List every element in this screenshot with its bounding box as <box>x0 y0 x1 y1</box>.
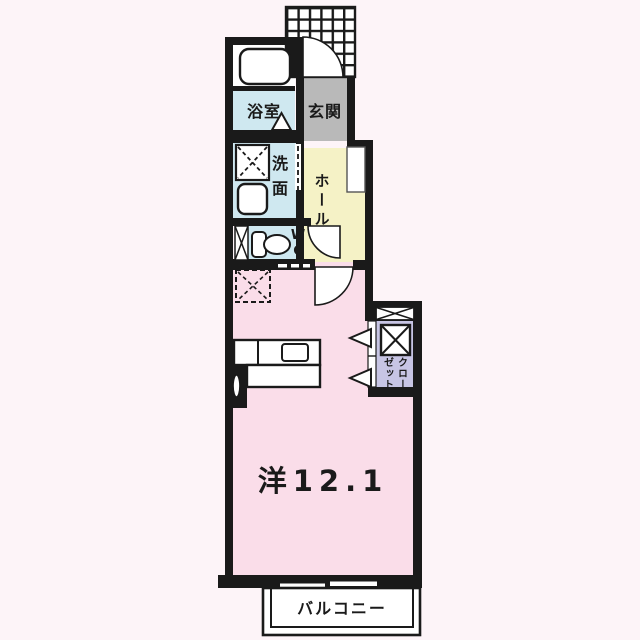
floorplan-canvas: 浴室 玄関 ホール 洗面 WC 洋12.1 クロー ゼット バルコニー <box>0 0 640 640</box>
wall-lens-window-icon <box>233 375 240 397</box>
closet-hanger-box-icon <box>381 325 410 355</box>
kitchen-sink-icon <box>282 344 308 361</box>
kitchen-counter-icon <box>234 340 320 387</box>
wall-wash-wc <box>225 218 311 226</box>
wall-bath-wash <box>225 130 303 143</box>
wall-right-upper <box>365 143 373 303</box>
washroom-sliding-door-icon <box>295 144 301 190</box>
balcony-label: バルコニー <box>271 596 413 618</box>
hall-label: ホール <box>311 150 333 252</box>
wall-gap-dashes <box>278 264 310 268</box>
shoe-cabinet-icon <box>347 147 365 192</box>
wall-window-slot-icon <box>235 226 248 260</box>
wall-right-lower <box>413 301 422 587</box>
wall-tub-line <box>233 86 295 91</box>
western-room-label: 洋12.1 <box>233 460 413 498</box>
closet-label-column-left: ゼット <box>380 356 394 390</box>
bath-label: 浴室 <box>231 100 297 120</box>
washing-machine-space-icon <box>236 145 269 180</box>
closet-window-bowtie-icon <box>376 307 414 320</box>
wall-door-right-piece <box>353 260 373 270</box>
toilet-icon <box>252 232 290 257</box>
washroom-label: 洗面 <box>268 146 288 214</box>
washbasin-icon <box>238 184 267 214</box>
bathtub-icon <box>240 49 290 84</box>
floorplan-drawing <box>0 0 640 640</box>
entrance-label: 玄関 <box>301 100 349 120</box>
closet-label-column-right: クロー <box>394 356 408 390</box>
wc-label: WC <box>289 228 307 260</box>
